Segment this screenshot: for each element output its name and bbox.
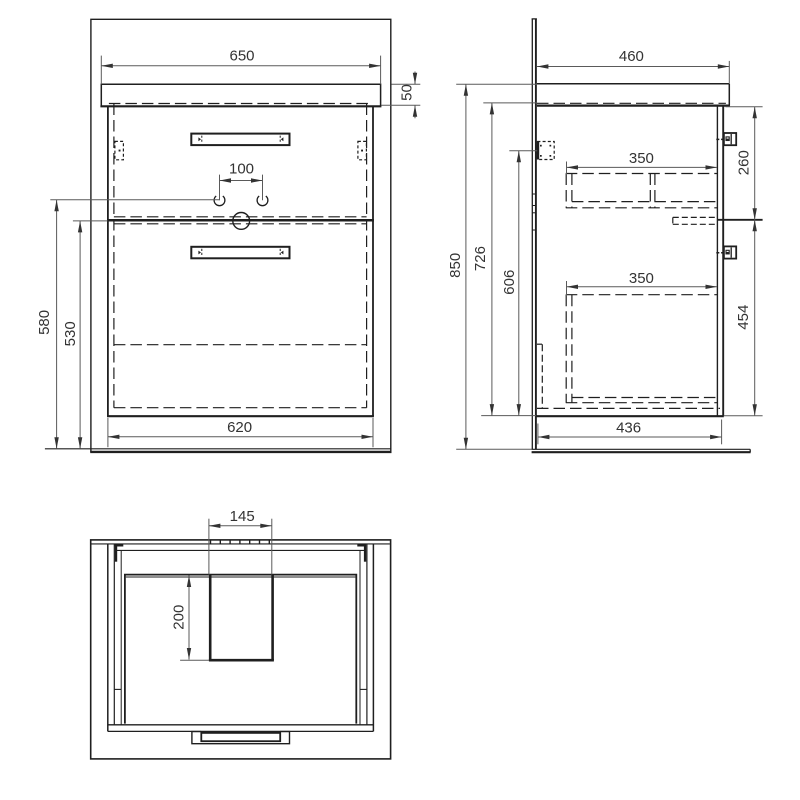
svg-text:606: 606 (501, 270, 518, 295)
svg-text:260: 260 (736, 150, 753, 175)
svg-text:454: 454 (735, 305, 752, 330)
svg-text:650: 650 (229, 48, 254, 65)
svg-text:850: 850 (447, 253, 464, 278)
svg-text:620: 620 (227, 419, 252, 436)
svg-text:530: 530 (62, 321, 79, 346)
svg-text:726: 726 (472, 246, 489, 271)
svg-text:50: 50 (399, 84, 416, 101)
svg-text:436: 436 (616, 420, 641, 437)
svg-text:145: 145 (230, 508, 255, 525)
svg-text:100: 100 (229, 161, 254, 178)
svg-text:200: 200 (170, 605, 187, 630)
svg-text:460: 460 (619, 48, 644, 65)
svg-text:350: 350 (629, 150, 654, 167)
svg-text:350: 350 (629, 270, 654, 287)
svg-text:580: 580 (36, 310, 53, 335)
